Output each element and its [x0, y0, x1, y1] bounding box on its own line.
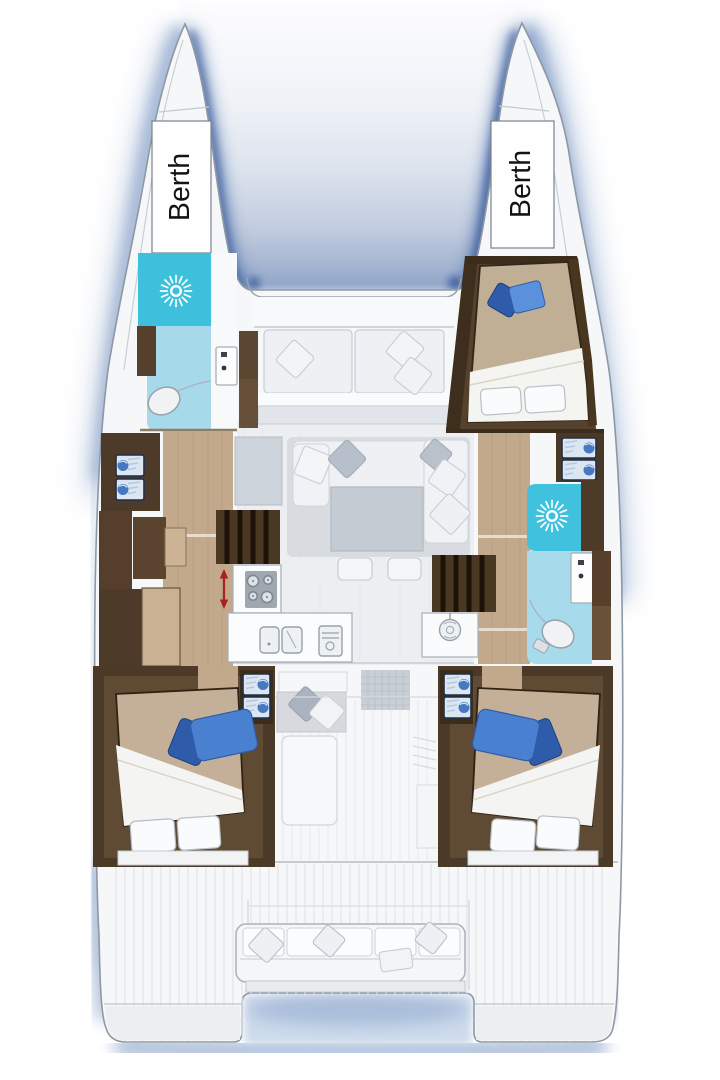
svg-text:Berth: Berth [505, 150, 537, 218]
svg-text:Berth: Berth [164, 153, 196, 221]
